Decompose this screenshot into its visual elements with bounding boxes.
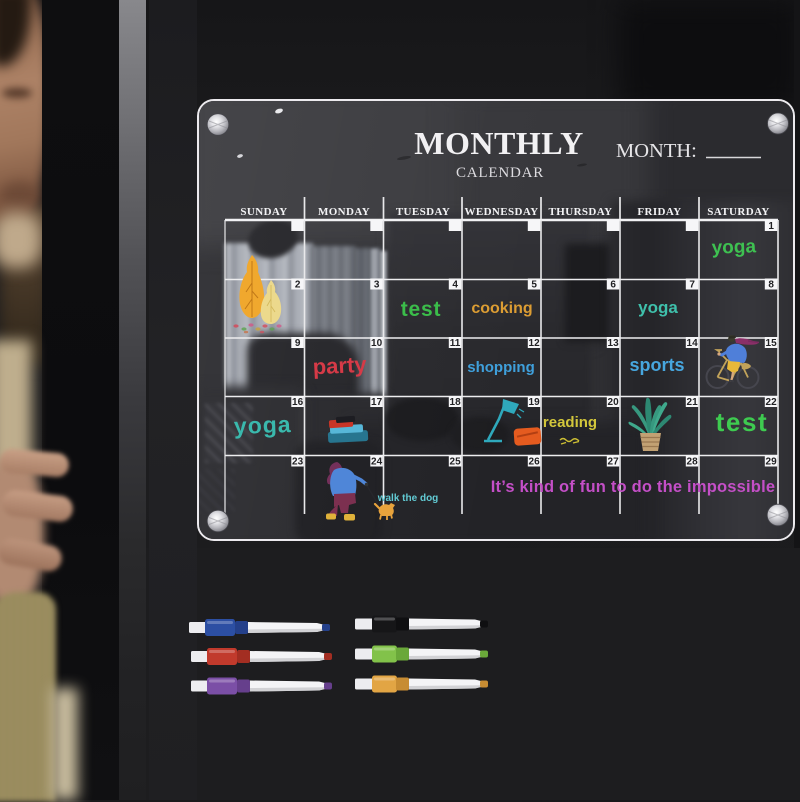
svg-text:27: 27 xyxy=(608,457,620,468)
svg-text:walk the dog: walk the dog xyxy=(377,493,439,504)
svg-text:20: 20 xyxy=(608,397,620,408)
svg-text:3: 3 xyxy=(374,280,380,291)
svg-text:5: 5 xyxy=(531,280,537,291)
svg-text:13: 13 xyxy=(608,338,620,349)
svg-text:shopping: shopping xyxy=(467,359,535,376)
svg-text:TUESDAY: TUESDAY xyxy=(396,206,450,218)
svg-text:MONDAY: MONDAY xyxy=(318,206,370,218)
svg-text:12: 12 xyxy=(529,338,541,349)
svg-text:15: 15 xyxy=(766,338,778,349)
svg-text:yoga: yoga xyxy=(638,298,678,317)
svg-text:CALENDAR: CALENDAR xyxy=(456,165,544,181)
svg-text:14: 14 xyxy=(687,338,699,349)
svg-text:6: 6 xyxy=(610,280,616,291)
svg-text:8: 8 xyxy=(768,280,774,291)
svg-text:yoga: yoga xyxy=(233,411,292,439)
svg-text:19: 19 xyxy=(529,397,541,408)
svg-text:test: test xyxy=(716,407,769,437)
svg-text:sports: sports xyxy=(629,355,684,375)
svg-text:4: 4 xyxy=(452,280,458,291)
svg-text:2: 2 xyxy=(295,280,301,291)
svg-text:29: 29 xyxy=(766,457,778,468)
svg-text:9: 9 xyxy=(295,338,301,349)
svg-text:MONTH:: MONTH: xyxy=(616,140,697,162)
svg-text:cooking: cooking xyxy=(471,300,532,317)
svg-text:25: 25 xyxy=(450,457,462,468)
svg-text:party: party xyxy=(312,352,368,380)
svg-text:7: 7 xyxy=(689,280,695,291)
svg-text:SUNDAY: SUNDAY xyxy=(240,206,287,218)
svg-text:26: 26 xyxy=(529,457,541,468)
svg-text:1: 1 xyxy=(768,221,774,232)
svg-text:18: 18 xyxy=(450,397,462,408)
svg-text:17: 17 xyxy=(371,397,383,408)
svg-text:16: 16 xyxy=(292,397,304,408)
svg-text:THURSDAY: THURSDAY xyxy=(549,206,613,218)
svg-text:FRIDAY: FRIDAY xyxy=(637,206,681,218)
svg-text:23: 23 xyxy=(292,457,304,468)
svg-text:WEDNESDAY: WEDNESDAY xyxy=(464,206,538,218)
svg-text:yoga: yoga xyxy=(711,236,756,259)
svg-text:MONTHLY: MONTHLY xyxy=(414,125,583,161)
svg-text:SATURDAY: SATURDAY xyxy=(707,206,770,218)
svg-text:10: 10 xyxy=(371,338,383,349)
svg-text:reading: reading xyxy=(543,414,597,431)
svg-text:24: 24 xyxy=(371,457,383,468)
svg-text:test: test xyxy=(401,298,442,321)
svg-text:11: 11 xyxy=(450,338,461,349)
svg-text:It’s kind of fun to do the imp: It’s kind of fun to do the impossible xyxy=(491,478,776,496)
svg-text:21: 21 xyxy=(687,397,699,408)
svg-text:28: 28 xyxy=(687,457,699,468)
